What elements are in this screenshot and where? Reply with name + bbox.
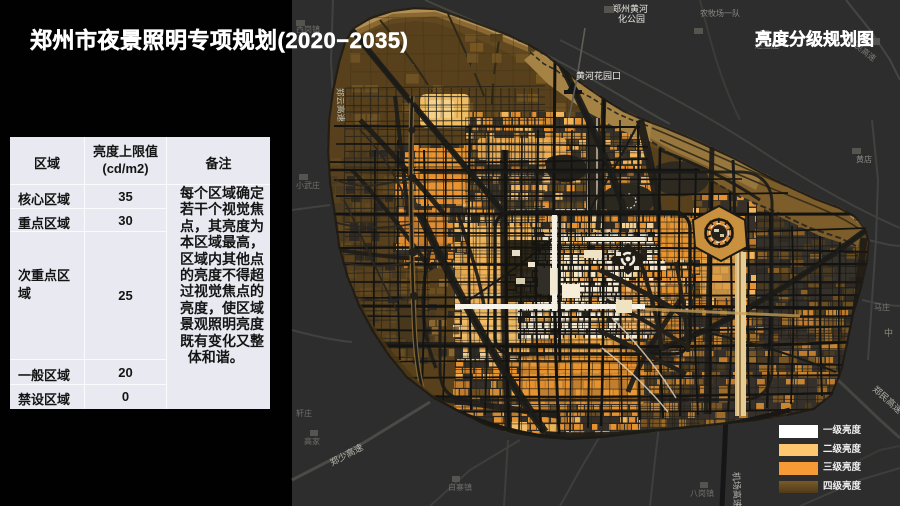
svg-text:八岗镇: 八岗镇 bbox=[690, 488, 714, 498]
svg-text:黄店: 黄店 bbox=[856, 154, 872, 164]
svg-text:机场高速: 机场高速 bbox=[731, 472, 743, 506]
svg-text:马庄: 马庄 bbox=[874, 302, 890, 312]
svg-text:化公园: 化公园 bbox=[618, 13, 645, 24]
svg-text:黄河花园口: 黄河花园口 bbox=[576, 70, 621, 81]
svg-text:郑云高速: 郑云高速 bbox=[335, 88, 346, 123]
svg-text:农牧场一队: 农牧场一队 bbox=[700, 8, 740, 18]
svg-text:高家: 高家 bbox=[304, 436, 320, 446]
svg-text:轩庄: 轩庄 bbox=[296, 408, 312, 418]
svg-text:白寨镇: 白寨镇 bbox=[448, 482, 472, 492]
svg-text:郑州黄河: 郑州黄河 bbox=[612, 3, 648, 14]
svg-text:中: 中 bbox=[884, 327, 893, 338]
svg-text:小武庄: 小武庄 bbox=[296, 180, 320, 190]
